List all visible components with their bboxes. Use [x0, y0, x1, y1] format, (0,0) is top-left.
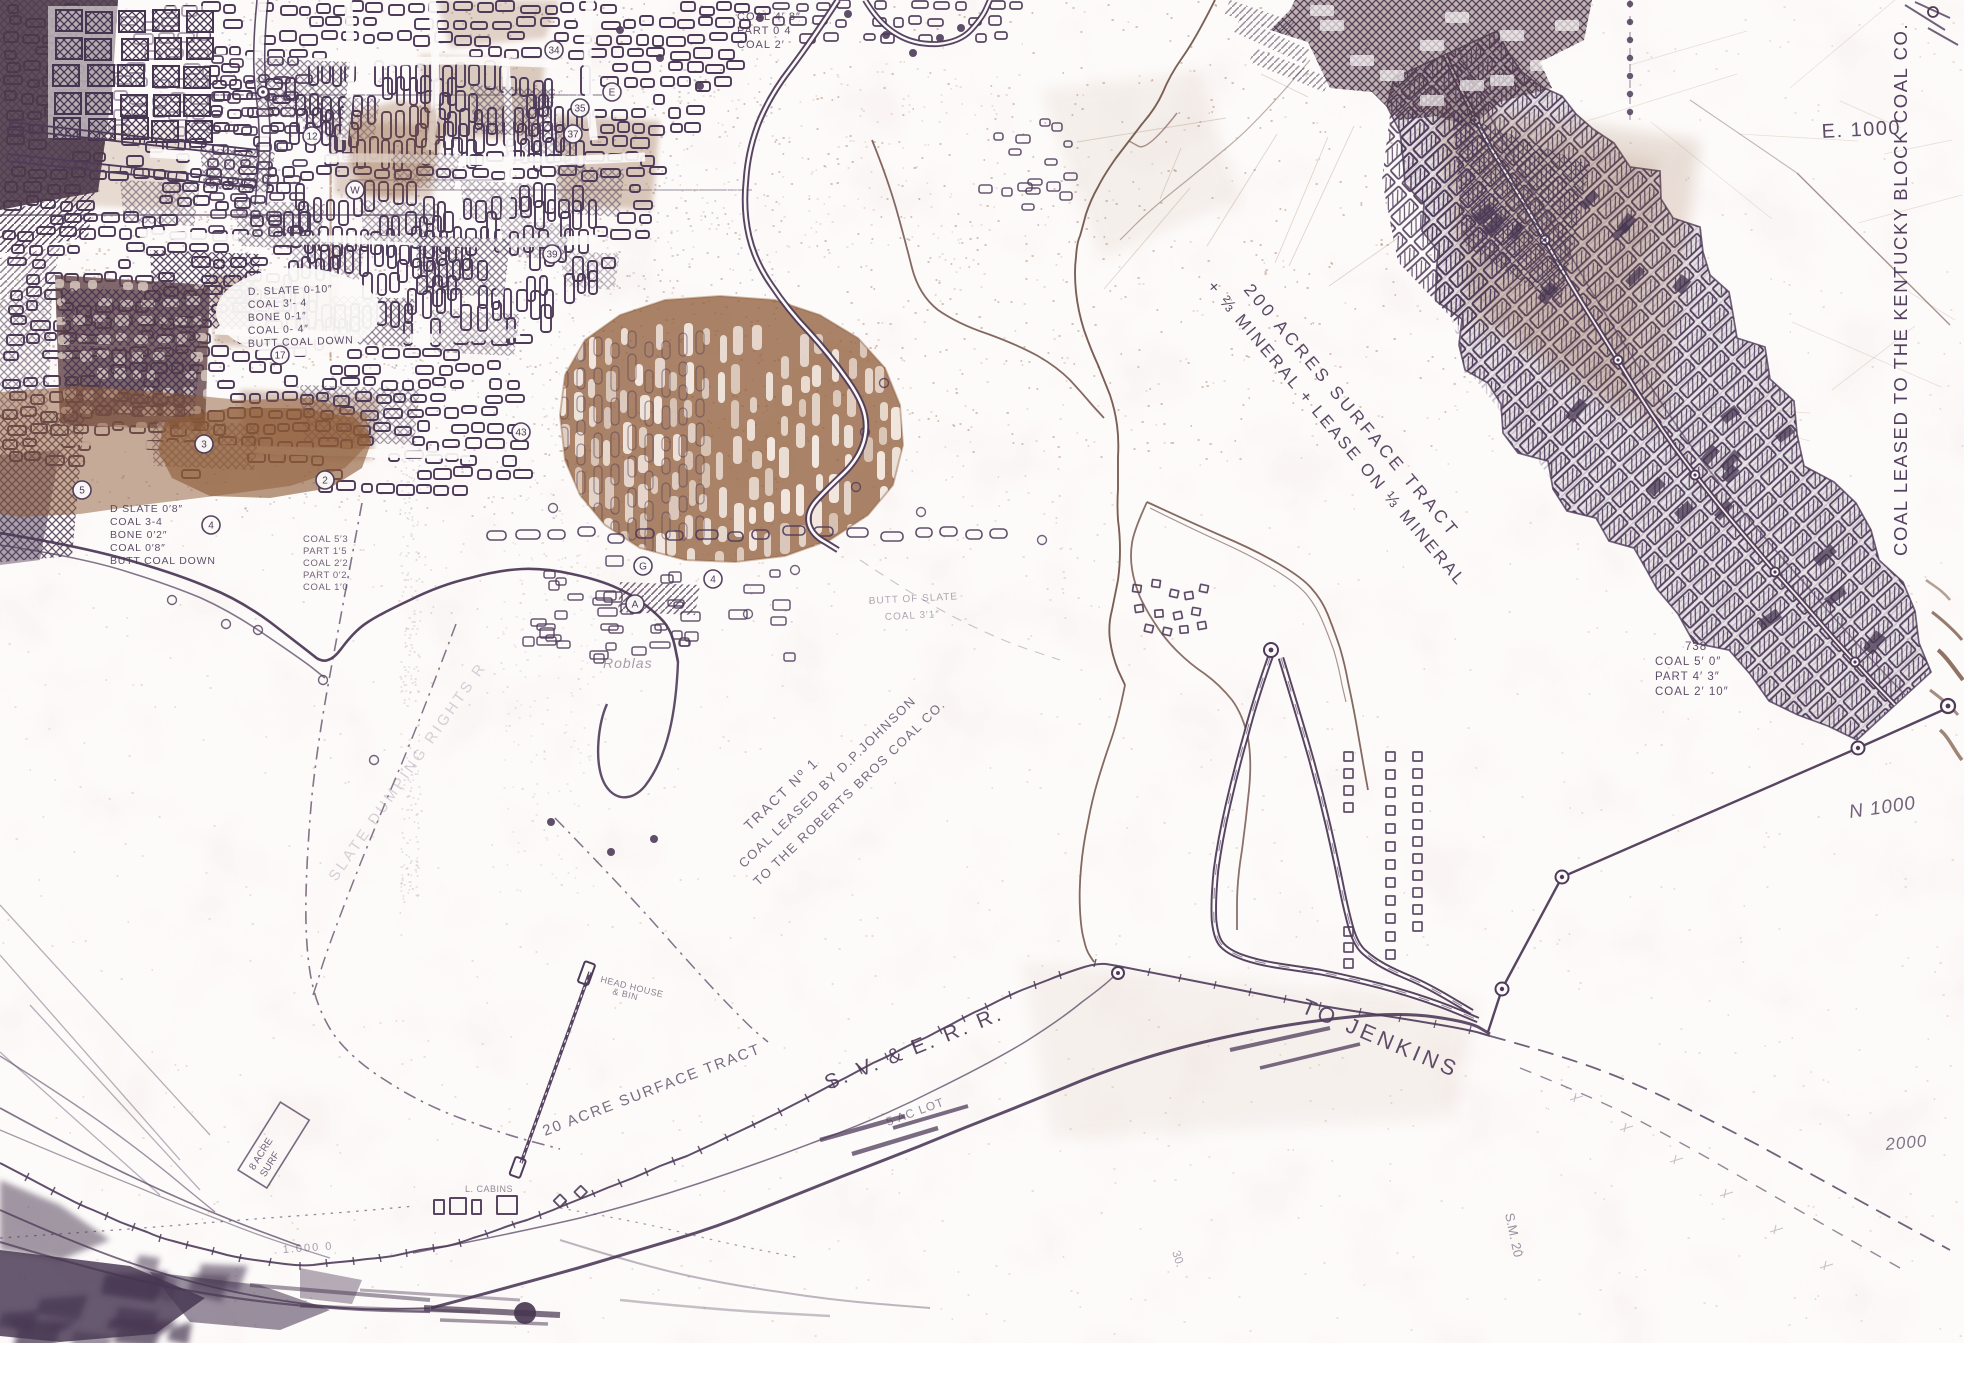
svg-text:COAL 3′- 4: COAL 3′- 4	[248, 297, 308, 311]
svg-text:BONE 0-1″: BONE 0-1″	[248, 310, 307, 324]
svg-text:35: 35	[574, 104, 586, 115]
svg-text:2000: 2000	[1884, 1131, 1928, 1154]
svg-text:PART 0′2: PART 0′2	[303, 570, 347, 581]
svg-text:4: 4	[208, 521, 214, 532]
svg-text:PART 4′ 3″: PART 4′ 3″	[1655, 671, 1720, 683]
svg-text:4: 4	[710, 575, 716, 586]
svg-text:COAL 0- 4″: COAL 0- 4″	[248, 323, 309, 337]
svg-text:COAL LEASED TO THE KENTUCKY BL: COAL LEASED TO THE KENTUCKY BLOCK COAL C…	[1890, 23, 1911, 556]
svg-text:COAL 0′8″: COAL 0′8″	[110, 542, 166, 554]
svg-text:COAL 3-4: COAL 3-4	[110, 516, 163, 528]
svg-text:A: A	[632, 600, 639, 611]
svg-text:COAL 1′0: COAL 1′0	[303, 582, 348, 593]
svg-text:COAL 2′ 10″: COAL 2′ 10″	[1655, 686, 1729, 698]
svg-text:2: 2	[322, 476, 328, 487]
svg-text:43: 43	[515, 428, 527, 439]
svg-text:12: 12	[306, 132, 318, 143]
svg-text:G: G	[639, 562, 647, 573]
svg-text:37: 37	[567, 130, 579, 141]
svg-text:COAL 4′ 8″: COAL 4′ 8″	[737, 11, 801, 23]
svg-text:34: 34	[548, 46, 560, 57]
svg-text:Roblas: Roblas	[603, 655, 653, 671]
svg-text:39: 39	[546, 250, 558, 261]
svg-text:PART 0 4: PART 0 4	[737, 25, 791, 37]
svg-text:COAL 5′3: COAL 5′3	[303, 534, 348, 545]
svg-text:E: E	[609, 88, 616, 99]
svg-text:BONE 0′2″: BONE 0′2″	[110, 529, 167, 541]
svg-text:3: 3	[201, 440, 207, 451]
svg-text:5: 5	[79, 486, 85, 497]
svg-text:D SLATE 0′8″: D SLATE 0′8″	[110, 503, 183, 515]
svg-text:COAL 5′ 0″: COAL 5′ 0″	[1655, 656, 1721, 668]
svg-text:COAL 2′: COAL 2′	[737, 39, 785, 51]
svg-text:COAL 2′2: COAL 2′2	[303, 558, 348, 569]
svg-text:17: 17	[274, 351, 286, 362]
svg-text:738: 738	[1685, 641, 1707, 653]
svg-text:PART 1′5: PART 1′5	[303, 546, 347, 557]
svg-text:BUTT COAL DOWN: BUTT COAL DOWN	[110, 555, 216, 567]
svg-text:L. CABINS: L. CABINS	[465, 1184, 513, 1194]
svg-text:W: W	[350, 186, 360, 197]
